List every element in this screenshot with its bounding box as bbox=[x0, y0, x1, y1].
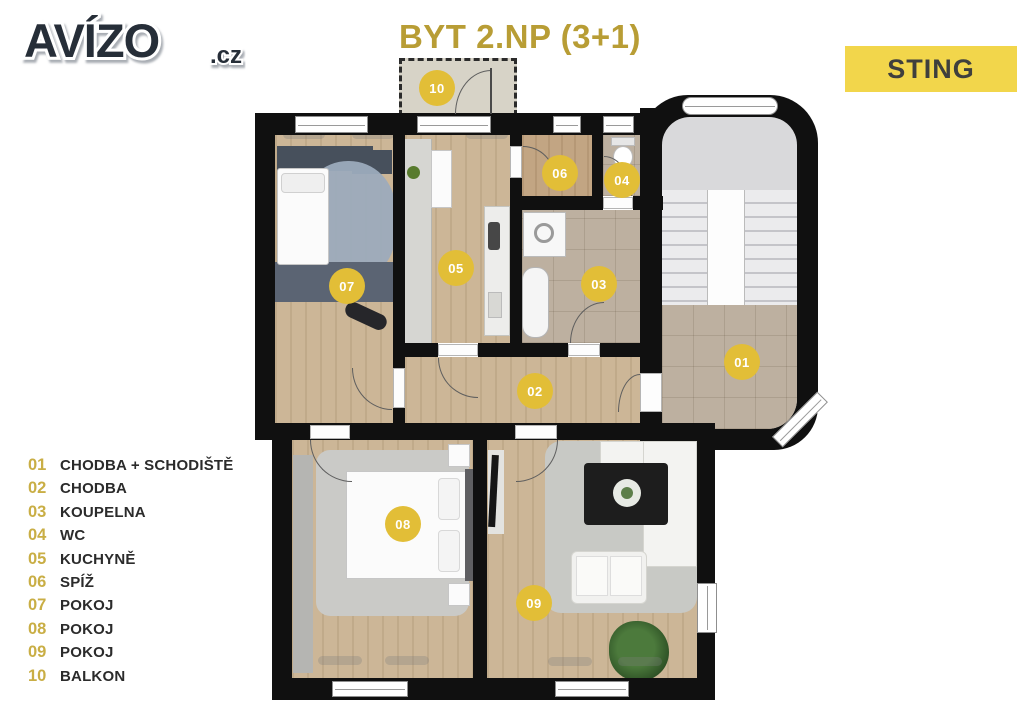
floorplan-page: AVÍZO .cz BYT 2.NP (3+1) STING bbox=[0, 0, 1024, 724]
legend-num: 09 bbox=[28, 643, 60, 662]
table-plant-09-leaves bbox=[621, 487, 633, 499]
kitchen-stove bbox=[488, 292, 502, 318]
legend-num: 01 bbox=[28, 456, 60, 475]
legend-num: 06 bbox=[28, 573, 60, 592]
balcony-door-threshold bbox=[417, 116, 491, 133]
legend-row: 02CHODBA bbox=[28, 479, 233, 502]
legend-num: 05 bbox=[28, 550, 60, 569]
bathtub bbox=[522, 267, 549, 338]
wall-kitchen-bottom-b bbox=[478, 343, 568, 357]
wall-07-05-lower bbox=[393, 408, 405, 440]
wall-08-09 bbox=[473, 440, 487, 678]
wall-09-right-b bbox=[697, 633, 715, 678]
legend-label: POKOJ bbox=[60, 621, 114, 638]
room-marker-10: 10 bbox=[419, 70, 455, 106]
wall-06-bath bbox=[510, 196, 603, 210]
watermark bbox=[385, 656, 429, 665]
legend-row: 06SPÍŽ bbox=[28, 573, 233, 596]
legend-row: 07POKOJ bbox=[28, 596, 233, 619]
legend-label: CHODBA bbox=[60, 480, 127, 497]
wall-09-right-a bbox=[697, 440, 715, 583]
legend-label: KOUPELNA bbox=[60, 504, 146, 521]
legend-row: 05KUCHYNĚ bbox=[28, 550, 233, 573]
wall-kitchen-bottom-a bbox=[393, 343, 438, 357]
door-kitchen-corridor bbox=[438, 344, 478, 356]
legend-label: SPÍŽ bbox=[60, 574, 94, 591]
room-marker-05: 05 bbox=[438, 250, 474, 286]
sting-badge: STING bbox=[845, 46, 1017, 92]
room-legend: 01CHODBA + SCHODIŠTĚ 02CHODBA 03KOUPELNA… bbox=[28, 456, 233, 690]
wall-left-upper bbox=[255, 113, 275, 440]
window-room-07 bbox=[295, 116, 368, 133]
legend-label: CHODBA + SCHODIŠTĚ bbox=[60, 457, 233, 474]
legend-label: WC bbox=[60, 527, 85, 544]
stairs-right-flight bbox=[745, 190, 797, 305]
legend-row: 10BALKON bbox=[28, 667, 233, 690]
window-room-09-right bbox=[697, 583, 717, 633]
toilet-tank bbox=[611, 137, 635, 146]
door-07-08 bbox=[310, 425, 350, 439]
logo-suffix: .cz bbox=[210, 42, 242, 69]
floor-plant-09 bbox=[609, 621, 669, 681]
kitchen-sink bbox=[488, 222, 500, 250]
wall-06-04 bbox=[592, 135, 603, 196]
logo-text: AVÍZO bbox=[24, 14, 159, 67]
door-wc bbox=[603, 197, 633, 209]
room-marker-09: 09 bbox=[516, 585, 552, 621]
legend-row: 01CHODBA + SCHODIŠTĚ bbox=[28, 456, 233, 479]
pillow-08-b bbox=[438, 530, 460, 572]
legend-num: 03 bbox=[28, 503, 60, 522]
window-room-09-bottom bbox=[555, 681, 629, 697]
bed-08-headboard bbox=[465, 469, 473, 581]
wall-05-06-a bbox=[510, 135, 522, 146]
door-07-corridor bbox=[393, 368, 405, 408]
legend-num: 02 bbox=[28, 479, 60, 498]
closet-08 bbox=[293, 455, 313, 673]
door-corridor-stairs bbox=[640, 373, 662, 412]
door-pantry bbox=[510, 146, 522, 178]
room-marker-06: 06 bbox=[542, 155, 578, 191]
avizo-logo: AVÍZO .cz bbox=[20, 10, 270, 76]
stair-bay-window bbox=[682, 97, 778, 115]
legend-row: 04WC bbox=[28, 526, 233, 549]
room-marker-01: 01 bbox=[724, 344, 760, 380]
legend-num: 10 bbox=[28, 667, 60, 686]
legend-num: 08 bbox=[28, 620, 60, 639]
window-pantry-06 bbox=[553, 116, 581, 133]
loveseat-cushion-a bbox=[576, 556, 608, 596]
window-room-08 bbox=[332, 681, 408, 697]
room-marker-08: 08 bbox=[385, 506, 421, 542]
legend-row: 03KOUPELNA bbox=[28, 503, 233, 526]
wall-07-05-upper bbox=[393, 135, 405, 368]
watermark bbox=[618, 657, 662, 666]
legend-num: 04 bbox=[28, 526, 60, 545]
room-marker-07: 07 bbox=[329, 268, 365, 304]
pillow-07 bbox=[281, 173, 325, 193]
nightstand-08-b bbox=[448, 583, 470, 606]
wall-left-lower bbox=[272, 437, 292, 700]
legend-label: POKOJ bbox=[60, 644, 114, 661]
legend-num: 07 bbox=[28, 596, 60, 615]
stairs-left-flight bbox=[662, 190, 707, 305]
legend-row: 08POKOJ bbox=[28, 620, 233, 643]
page-title: BYT 2.NP (3+1) bbox=[340, 18, 700, 56]
room-marker-02: 02 bbox=[517, 373, 553, 409]
stairwell-interior bbox=[662, 117, 797, 429]
wall-right-upper bbox=[640, 108, 662, 373]
wall-right-lowerstub bbox=[640, 412, 662, 426]
nightstand-08-a bbox=[448, 444, 470, 467]
plant-kitchen bbox=[407, 166, 420, 179]
kitchen-table bbox=[431, 150, 452, 208]
stairwell-gap bbox=[707, 190, 745, 305]
legend-label: POKOJ bbox=[60, 597, 114, 614]
legend-row: 09POKOJ bbox=[28, 643, 233, 666]
balcony-door-leaf bbox=[490, 68, 492, 114]
washer-drum bbox=[534, 223, 554, 243]
door-corridor-09 bbox=[515, 425, 557, 439]
watermark bbox=[318, 656, 362, 665]
room-marker-03: 03 bbox=[581, 266, 617, 302]
legend-label: BALKON bbox=[60, 668, 125, 685]
window-wc-04 bbox=[603, 116, 634, 133]
room-marker-04: 04 bbox=[604, 162, 640, 198]
watermark bbox=[548, 657, 592, 666]
legend-label: KUCHYNĚ bbox=[60, 551, 136, 568]
door-bath-corridor bbox=[568, 344, 600, 356]
pillow-08-a bbox=[438, 478, 460, 520]
loveseat-cushion-b bbox=[610, 556, 642, 596]
